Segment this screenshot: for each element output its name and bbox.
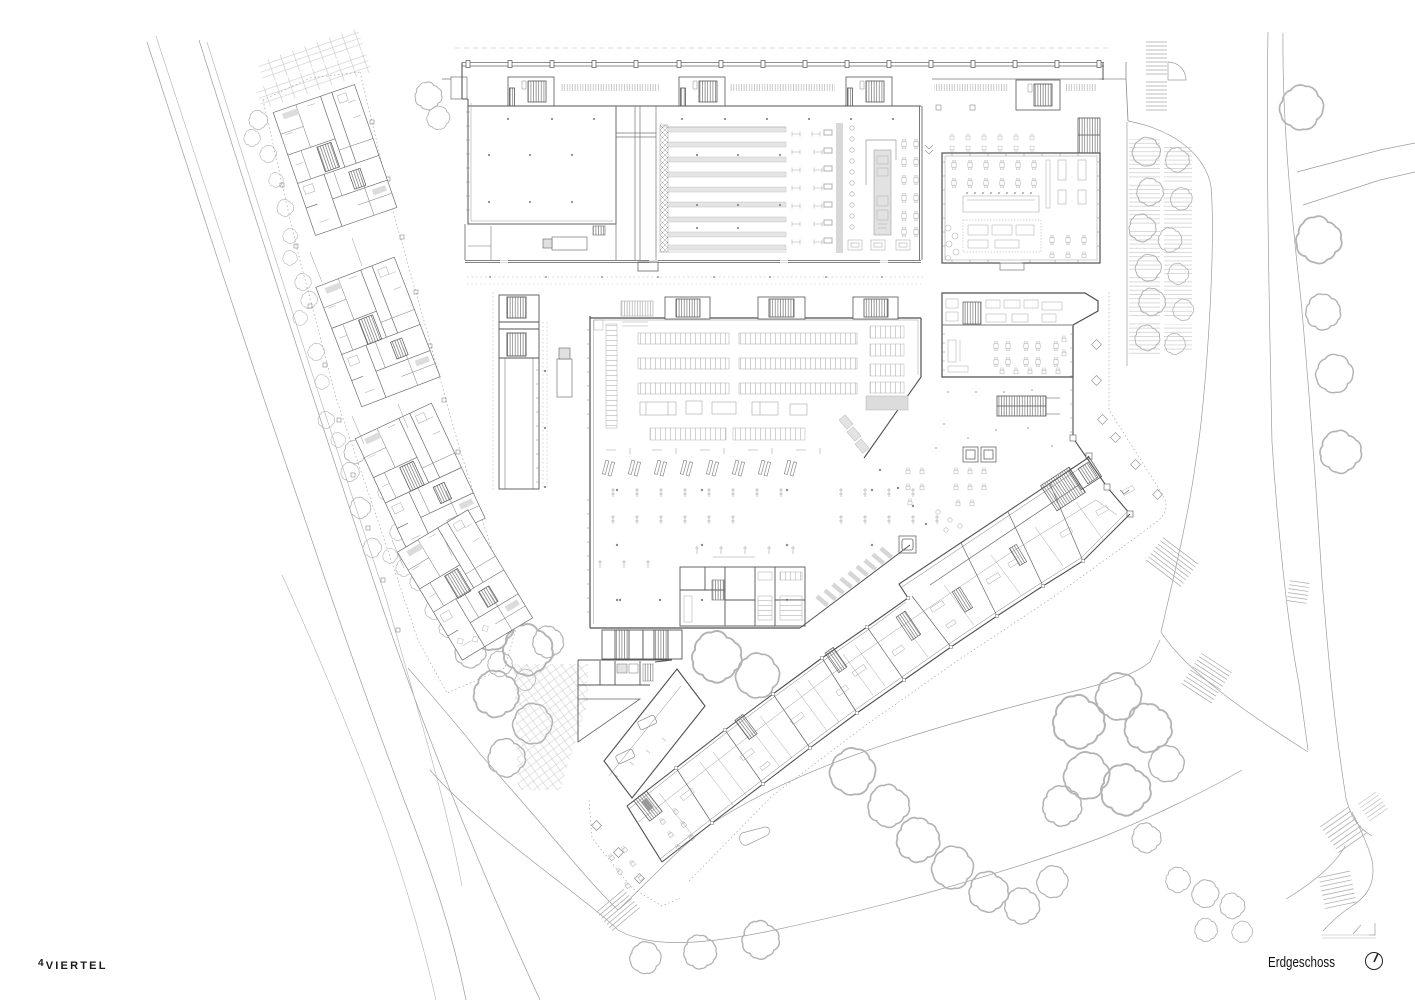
svg-text:Erdgeschoss: Erdgeschoss	[1268, 954, 1335, 971]
svg-text:4VIERTEL: 4VIERTEL	[38, 958, 108, 972]
